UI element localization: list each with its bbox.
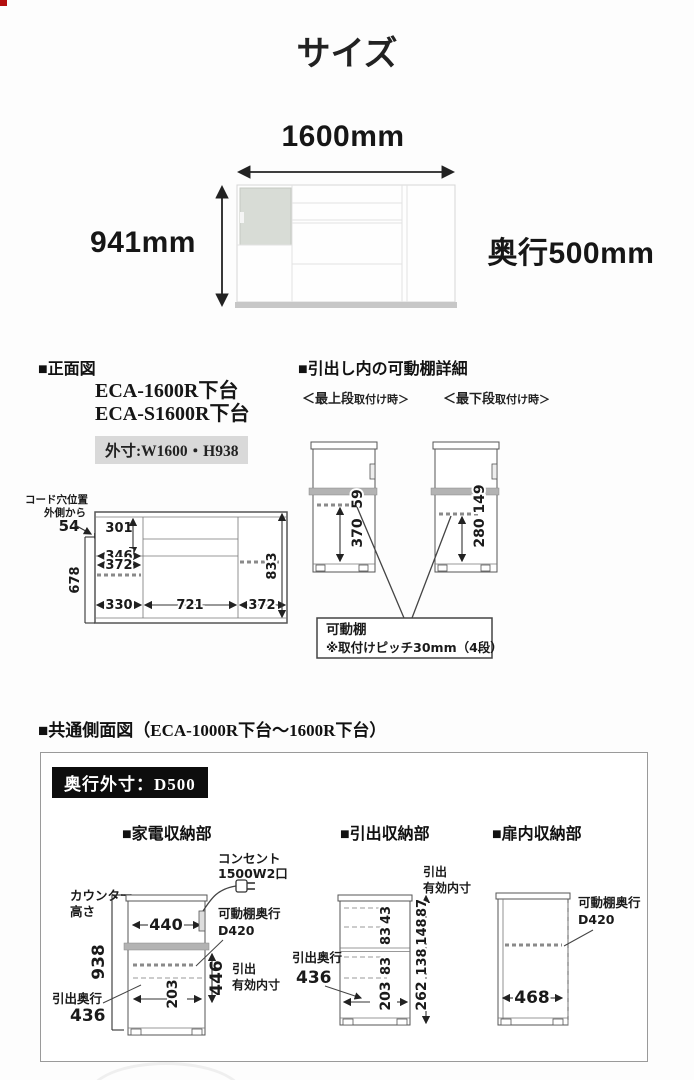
outlet-box: [199, 911, 205, 931]
cell-dim-83a: 83: [379, 927, 394, 945]
door-shelf-label-1: 可動棚奥行: [578, 895, 641, 910]
dim-436: 436: [70, 1006, 106, 1026]
note-line2: ※取付けピッチ30mm（4段）: [326, 640, 503, 655]
watermark-arc: [88, 1062, 244, 1080]
dim-446: 446: [207, 960, 227, 996]
model-name-2: ECA-S1600R下台: [95, 403, 249, 426]
drawer-diagram: 43 83 83 203 引出 有効内寸 87 148 138 262 引出奥行…: [292, 864, 471, 1025]
cell-dim-83b: 83: [379, 957, 394, 975]
cord-hole-note: コード穴位置 外側から 54: [25, 493, 100, 539]
door-handle: [370, 464, 375, 479]
outlet-label-2: 1500W2口: [218, 866, 288, 881]
dim-149: 149: [472, 484, 488, 513]
dim-468: 468: [514, 988, 550, 1008]
dim-330: 330: [105, 598, 132, 613]
inner-label-1: 引出: [232, 961, 256, 976]
side-view-drawings: カウンター 高さ 938 440 コンセント 1500W2口 可動棚奥行: [45, 845, 650, 1057]
dim-436-drawer: 436: [296, 968, 332, 988]
overview-width-label: 1600mm: [243, 120, 443, 154]
dim-372-right: 372: [248, 598, 275, 613]
drawer-depth-label: 引出奥行: [292, 950, 343, 965]
movable-shelf-note-box: 可動棚 ※取付けピッチ30mm（4段）: [317, 618, 503, 658]
cord-note-line1: コード穴位置: [25, 493, 88, 506]
drawer-inner-label-2: 有効内寸: [423, 880, 471, 895]
dim-938: 938: [89, 944, 109, 980]
dim-301: 301: [105, 521, 132, 536]
drawer-depth-label: 引出奥行: [52, 991, 103, 1006]
front-view-header: ■正面図: [38, 355, 96, 379]
dim-678: 678: [68, 566, 83, 593]
shelf-cabinet-bottom-position: 149 280: [431, 442, 499, 572]
dim-440: 440: [149, 915, 182, 934]
label-top-rest: 取付け時＞: [354, 394, 409, 406]
appliance-diagram: カウンター 高さ 938 440 コンセント 1500W2口 可動棚奥行: [52, 851, 288, 1035]
product-illustration: [215, 165, 465, 320]
drawer-inner-label-1: 引出: [423, 864, 447, 879]
note-line1: 可動棚: [326, 621, 367, 638]
dim-59: 59: [350, 489, 366, 508]
door-diagram: 可動棚奥行 D420 468: [496, 893, 641, 1025]
cabinet-photo: [235, 185, 457, 308]
plug-icon: [236, 880, 255, 892]
side-view-header: ■共通側面図（ECA-1000R下台～1600R下台）: [38, 716, 386, 741]
shelf-depth-label-1: 可動棚奥行: [218, 906, 281, 921]
right-dim-87: 87: [415, 899, 430, 917]
counter-label-2: 高さ: [70, 904, 95, 919]
front-view-drawing: コード穴位置 外側から 54 301 346 372: [30, 470, 320, 648]
drawer-section-header: ■引出収納部: [340, 820, 430, 844]
dim-203: 203: [165, 979, 181, 1008]
counter-band: [309, 488, 377, 495]
outlet-label-1: コンセント: [218, 851, 281, 866]
right-dim-262: 262: [414, 981, 430, 1010]
right-dim-148: 148: [415, 918, 430, 945]
overview-height-label: 941mm: [43, 226, 243, 260]
shelf-detail-header: ■引出し内の可動棚詳細: [298, 355, 468, 379]
door-handle: [492, 464, 497, 479]
cabinet-base: [235, 302, 457, 308]
counter-band: [431, 488, 499, 495]
door-section-header: ■扉内収納部: [492, 820, 582, 844]
overview-depth-label: 奥行500mm: [466, 228, 676, 272]
cell-dim-43: 43: [379, 906, 394, 924]
cell-dim-203: 203: [378, 981, 394, 1010]
dim-833: 833: [265, 552, 280, 579]
dim-372-left: 372: [105, 558, 132, 573]
shelf-depth-label-2: D420: [218, 923, 255, 938]
label-top-bold: ＜最上段: [302, 391, 354, 406]
door-shelf-label-2: D420: [578, 912, 615, 927]
red-corner-mark: [0, 0, 7, 6]
depth-badge: 奥行外寸：D500: [52, 767, 208, 798]
shelf-cabinet-top-position: 59 370: [309, 442, 377, 572]
size-spec-sheet: サイズ 1600mm 941mm 奥行500mm: [0, 0, 694, 1080]
inner-label-2: 有効内寸: [232, 977, 280, 992]
shelf-detail-label-top: ＜最上段取付け時＞: [302, 388, 409, 408]
appliance-section-header: ■家電収納部: [122, 820, 212, 844]
shelf-detail-drawing: 59 370 149 280 可動棚 ※取付けピッチ30mm（4段）: [300, 428, 620, 673]
label-bottom-bold: ＜最下段: [443, 391, 495, 406]
dim-721: 721: [176, 598, 203, 613]
model-name-1: ECA-1600R下台: [95, 380, 238, 403]
outer-dimension-box: 外寸:W1600・H938: [95, 436, 248, 464]
counter-band: [124, 943, 209, 950]
right-dim-138: 138: [415, 948, 430, 975]
label-bottom-rest: 取付け時＞: [495, 394, 550, 406]
dim-280: 280: [472, 518, 488, 547]
page-title: サイズ: [0, 26, 694, 75]
shelf-detail-label-bottom: ＜最下段取付け時＞: [443, 388, 550, 408]
open-compartment: [240, 188, 291, 245]
